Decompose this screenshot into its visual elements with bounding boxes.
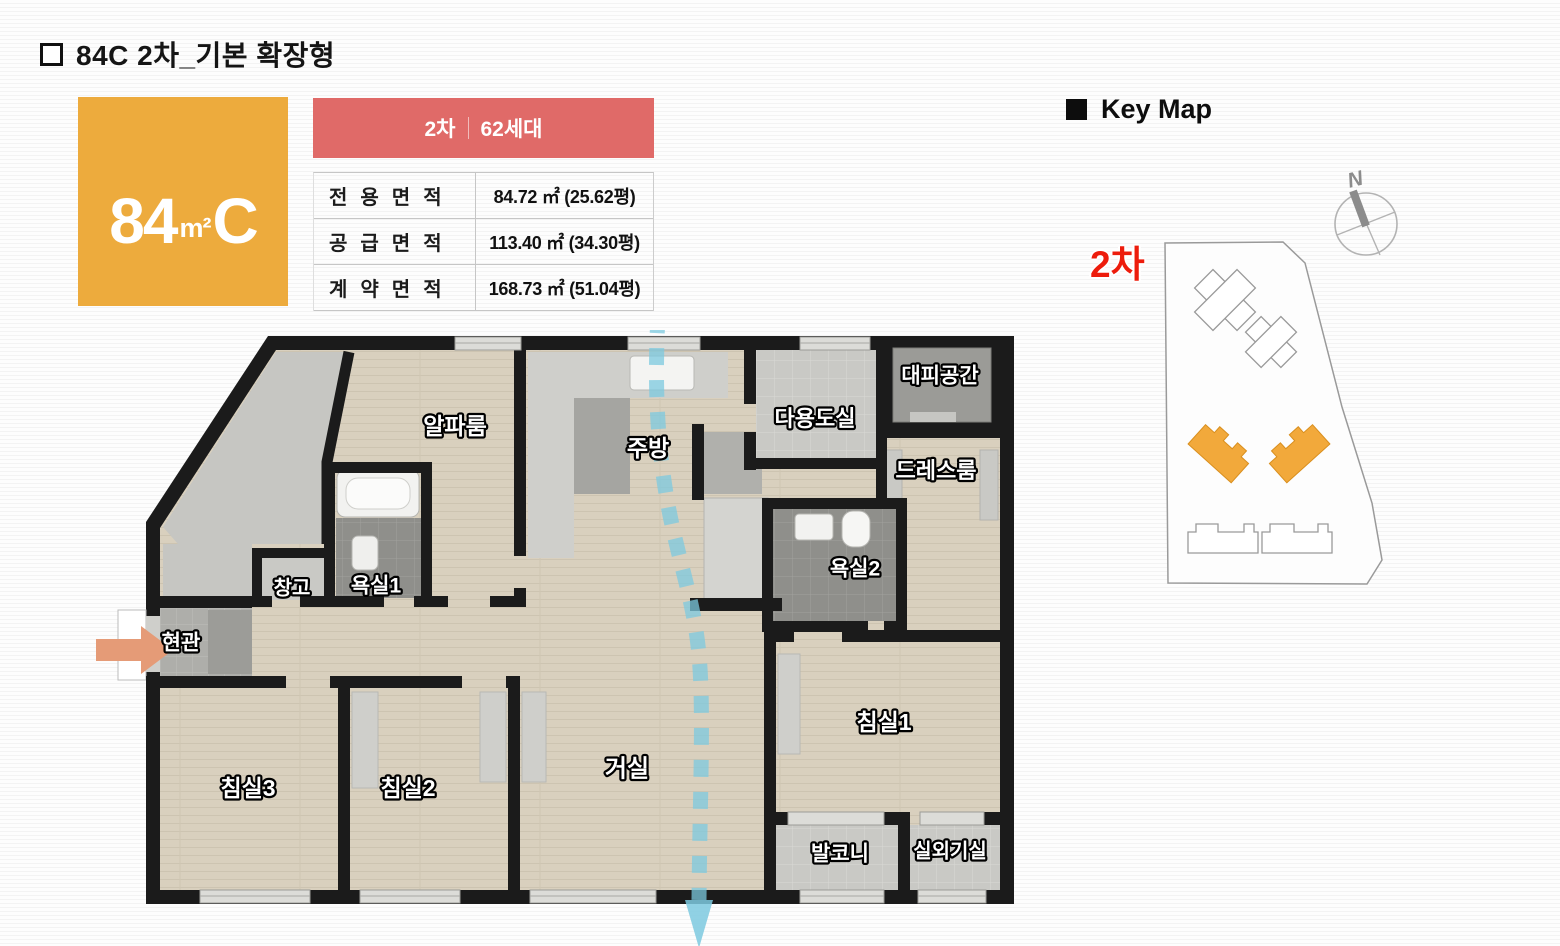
checkbox-icon — [40, 43, 63, 66]
room-label-bathroom2: 욕실2 — [830, 558, 880, 581]
row-value: 168.73 ㎡ (51.04평) — [475, 265, 653, 310]
phase: 2차 — [425, 113, 456, 143]
slide: 84C 2차_기본 확장형 84 m² C 2차 62세대 전용면적 84.72… — [0, 0, 1560, 946]
keymap-title: Key Map — [1066, 94, 1212, 125]
page-title: 84C 2차_기본 확장형 — [40, 34, 335, 74]
room-label-ac-unit-room: 실외기실 — [913, 839, 987, 862]
room-label-dress-room: 드레스룸 — [896, 458, 977, 483]
room-label-balcony: 발코니 — [811, 843, 869, 866]
compass-north-label: N — [1345, 166, 1366, 192]
row-value: 84.72 ㎡ (25.62평) — [475, 173, 653, 218]
floor-plan: 알파룸주방다용도실대피공간드레스룸욕실1창고욕실2현관침실3침실2거실침실1발코… — [90, 330, 1018, 946]
room-label-shelter: 대피공간 — [901, 365, 978, 388]
table-row: 공급면적 113.40 ㎡ (34.30평) — [314, 219, 653, 265]
table-row: 계약면적 168.73 ㎡ (51.04평) — [314, 265, 653, 311]
header-divider — [468, 117, 469, 139]
table-header: 2차 62세대 — [313, 98, 654, 158]
unit-count: 62세대 — [481, 113, 543, 143]
room-label-bathroom1: 욕실1 — [351, 575, 402, 598]
table-body: 전용면적 84.72 ㎡ (25.62평) 공급면적 113.40 ㎡ (34.… — [313, 172, 654, 311]
room-label-living-room: 거실 — [605, 755, 649, 782]
vent-arrow-down-icon — [685, 900, 713, 946]
room-label-bedroom1: 침실1 — [856, 709, 911, 735]
unit-measure: m² — [179, 213, 210, 244]
row-label: 공급면적 — [314, 219, 475, 264]
square-bullet-icon — [1066, 99, 1087, 120]
unit-size: 84 — [109, 189, 176, 253]
row-label: 전용면적 — [314, 173, 475, 218]
room-label-bedroom3: 침실3 — [220, 775, 275, 801]
room-label-kitchen: 주방 — [627, 435, 669, 461]
room-label-bedroom2: 침실2 — [380, 775, 435, 801]
keymap-title-text: Key Map — [1101, 94, 1212, 125]
room-label-utility-room: 다용도실 — [775, 406, 856, 431]
page-title-text: 84C 2차_기본 확장형 — [76, 34, 335, 74]
table-row: 전용면적 84.72 ㎡ (25.62평) — [314, 173, 653, 219]
area-info-table: 2차 62세대 전용면적 84.72 ㎡ (25.62평) 공급면적 113.4… — [313, 98, 654, 311]
keymap-drawing: N — [1080, 160, 1510, 610]
room-label-entrance: 현관 — [162, 632, 201, 655]
room-label-alpha-room: 알파룸 — [423, 413, 486, 439]
duct-zone — [163, 544, 252, 600]
unit-letter: C — [212, 189, 256, 253]
unit-type-badge: 84 m² C — [78, 97, 288, 306]
utility-floor — [756, 350, 880, 458]
row-label: 계약면적 — [314, 265, 475, 310]
compass-icon: N — [1335, 166, 1397, 255]
room-label-storage: 창고 — [274, 576, 311, 599]
row-value: 113.40 ㎡ (34.30평) — [475, 219, 653, 264]
